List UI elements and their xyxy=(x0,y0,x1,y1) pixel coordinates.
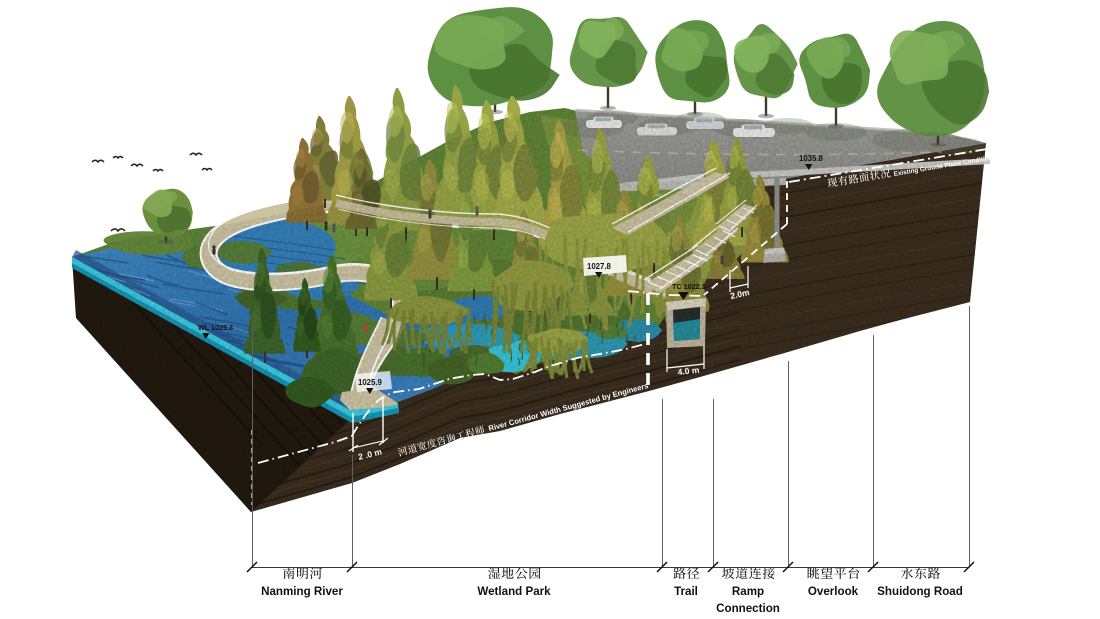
svg-text:Wetland Park: Wetland Park xyxy=(477,585,551,598)
svg-text:Ramp: Ramp xyxy=(732,585,764,598)
svg-text:1027.8: 1027.8 xyxy=(587,262,612,271)
svg-text:Connection: Connection xyxy=(716,602,780,615)
svg-text:WL 1025.3: WL 1025.3 xyxy=(198,323,233,332)
svg-text:Trail: Trail xyxy=(674,585,698,598)
svg-text:Nanming River: Nanming River xyxy=(261,585,343,598)
svg-text:1025.9: 1025.9 xyxy=(358,378,383,387)
svg-text:Overlook: Overlook xyxy=(808,585,859,598)
svg-text:Shuidong Road: Shuidong Road xyxy=(877,585,963,598)
svg-text:1035.8: 1035.8 xyxy=(799,154,824,163)
svg-text:TC 1022.1: TC 1022.1 xyxy=(672,282,706,291)
